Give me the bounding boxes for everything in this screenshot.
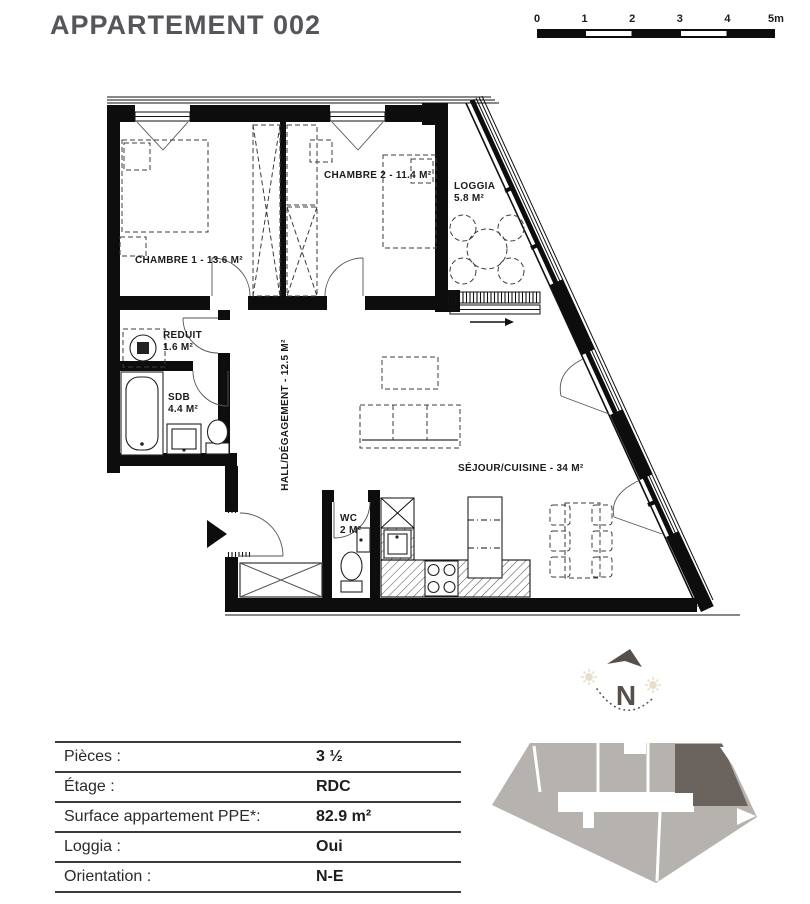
table-row: Loggia : Oui bbox=[55, 831, 461, 861]
sun-icon-left bbox=[581, 669, 597, 685]
fridge-icon bbox=[381, 498, 414, 528]
row-value: Oui bbox=[316, 838, 343, 856]
scale-tick-1: 1 bbox=[582, 13, 588, 25]
table-row: Étage : RDC bbox=[55, 771, 461, 801]
row-label: Surface appartement PPE*: bbox=[55, 808, 316, 826]
label-reduit-area: 1.6 M² bbox=[163, 342, 194, 353]
furniture bbox=[120, 125, 612, 597]
dining-table-icon bbox=[550, 503, 612, 578]
kitchen-sink-icon bbox=[384, 530, 411, 558]
door-chambre2 bbox=[325, 258, 363, 296]
row-value: 82.9 m² bbox=[316, 808, 371, 826]
wc-toilet-icon bbox=[341, 552, 362, 592]
compass: N bbox=[581, 649, 661, 711]
label-wc-name: WC bbox=[340, 513, 357, 524]
row-label: Pièces : bbox=[55, 748, 316, 766]
sun-icon-right bbox=[645, 677, 661, 693]
label-loggia-name: LOGGIA bbox=[454, 181, 495, 192]
entrance-arrow-icon bbox=[207, 520, 227, 548]
row-value: N-E bbox=[316, 868, 344, 886]
door-entrance bbox=[240, 513, 283, 556]
coffee-table-icon bbox=[382, 357, 438, 389]
label-loggia-area: 5.8 M² bbox=[454, 193, 485, 204]
scale-bar: 0 1 2 3 4 5m bbox=[534, 13, 784, 38]
loggia-table-icon bbox=[450, 215, 524, 284]
north-arrow-icon bbox=[607, 649, 642, 667]
compass-n-label: N bbox=[616, 680, 636, 711]
scale-tick-3: 3 bbox=[677, 13, 683, 25]
key-plan bbox=[492, 743, 757, 883]
room-labels: CHAMBRE 1 - 13.6 M² CHAMBRE 2 - 11.4 M² … bbox=[135, 170, 584, 536]
loggia-sill bbox=[448, 292, 540, 326]
window-chambre2-icon bbox=[330, 112, 385, 150]
floor-plan-sheet: APPARTEMENT 002 0 1 2 3 4 5m bbox=[0, 0, 810, 904]
entry-closet-icon bbox=[240, 563, 322, 597]
row-label: Loggia : bbox=[55, 838, 316, 856]
row-label: Orientation : bbox=[55, 868, 316, 886]
label-sdb-area: 4.4 M² bbox=[168, 404, 199, 415]
scale-tick-2: 2 bbox=[629, 13, 635, 25]
direction-arrow-icon bbox=[470, 318, 514, 326]
bed2-icon bbox=[310, 140, 436, 248]
label-reduit-name: REDUIT bbox=[163, 330, 202, 341]
table-row: Pièces : 3 ½ bbox=[55, 741, 461, 771]
tall-cabinet-icon bbox=[468, 497, 502, 578]
label-hall: HALL/DÉGAGEMENT - 12.5 M² bbox=[278, 339, 291, 491]
row-label: Étage : bbox=[55, 778, 316, 796]
toilet-icon bbox=[206, 420, 229, 454]
label-wc-area: 2 M² bbox=[340, 525, 362, 536]
label-chambre2: CHAMBRE 2 - 11.4 M² bbox=[324, 170, 432, 181]
row-value: RDC bbox=[316, 778, 351, 796]
scale-tick-4: 4 bbox=[724, 13, 731, 25]
bed1-icon bbox=[120, 140, 208, 256]
sink-icon bbox=[167, 424, 201, 454]
details-table: Pièces : 3 ½ Étage : RDC Surface apparte… bbox=[55, 741, 461, 893]
bathtub-icon bbox=[121, 372, 163, 455]
label-chambre1: CHAMBRE 1 - 13.6 M² bbox=[135, 255, 243, 266]
label-sejour: SÉJOUR/CUISINE - 34 M² bbox=[458, 461, 584, 474]
scale-tick-5: 5m bbox=[768, 13, 784, 25]
scale-tick-0: 0 bbox=[534, 13, 540, 25]
table-row: Orientation : N-E bbox=[55, 861, 461, 891]
kitchen-icons bbox=[381, 497, 530, 597]
label-sdb-name: SDB bbox=[168, 392, 190, 403]
table-row: Surface appartement PPE*: 82.9 m² bbox=[55, 801, 461, 831]
sofa-icon bbox=[360, 405, 460, 448]
stove-icon bbox=[425, 561, 458, 596]
window-chambre1-icon bbox=[135, 112, 190, 150]
row-value: 3 ½ bbox=[316, 748, 343, 766]
